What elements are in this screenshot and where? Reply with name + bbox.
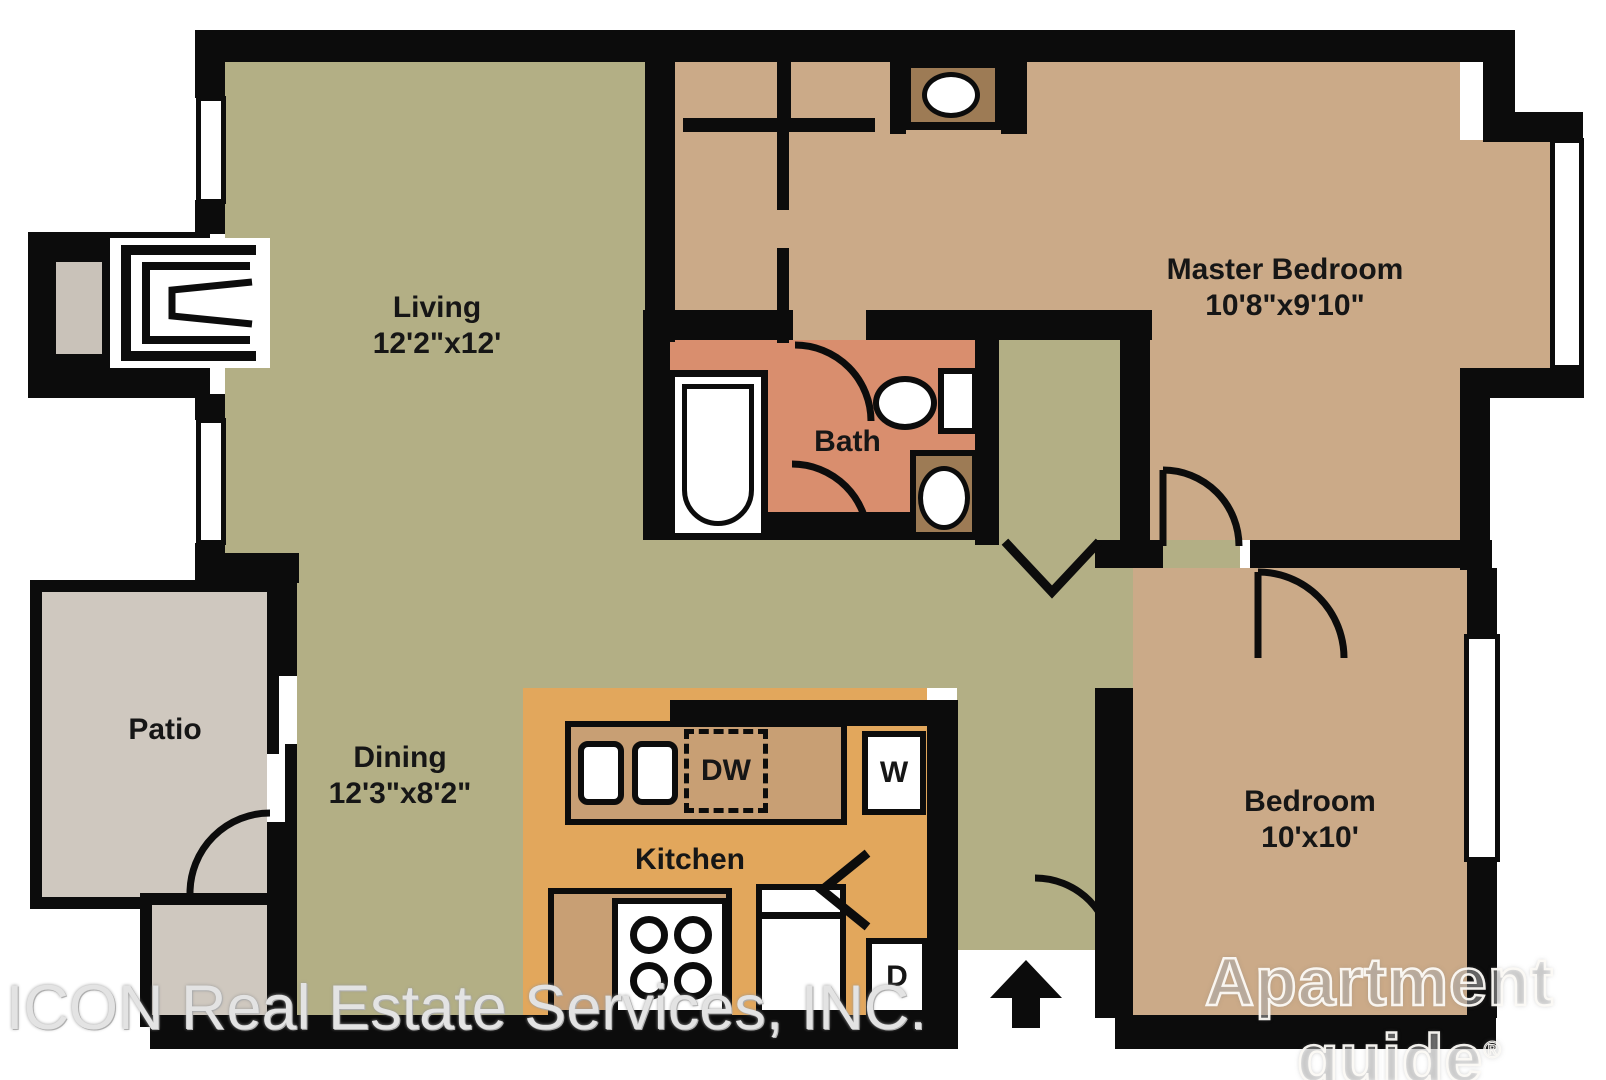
wall-living-foyer [645, 62, 675, 342]
apartment-guide-watermark: Apartment guide® [1205, 950, 1554, 1080]
living-label: Living [297, 290, 577, 326]
dining-label: Dining [260, 740, 540, 776]
wall-left-top [195, 30, 225, 98]
wall-bath-top-right [866, 310, 1152, 340]
patio-name: Patio [128, 713, 201, 746]
master-dims-text: 10'8"x9'10" [1205, 289, 1365, 322]
window-master-bay [1550, 138, 1584, 370]
kitchen-sink-left-icon [578, 741, 624, 805]
wall-bath-top-left [643, 310, 793, 340]
master-bay-floor [1460, 140, 1552, 370]
wall-wc-stub-right [1001, 62, 1027, 134]
patio-label: Patio [85, 712, 245, 748]
washer-box: W [862, 731, 926, 815]
kitchen-label: Kitchen [590, 842, 790, 878]
wall-closet-left [975, 340, 999, 545]
wall-closet-right [1120, 340, 1150, 545]
stove-burner-2 [674, 916, 712, 954]
wall-bay-bottom [1490, 368, 1584, 398]
brand-line1: Apartment [1205, 944, 1554, 1020]
dining-name: Dining [353, 741, 446, 774]
wall-master-bed-divider-right [1250, 540, 1492, 568]
dining-dims-text: 12'3"x8'2" [329, 777, 472, 810]
wall-right-bedroom-upper [1467, 568, 1497, 638]
bathtub-basin [682, 384, 754, 526]
bath-sink-icon [873, 376, 937, 430]
wall-foyer-thin-v3 [777, 248, 789, 343]
wall-corridor-right [1095, 688, 1133, 1018]
wall-bath-left [643, 340, 670, 540]
bath-counter [938, 368, 978, 434]
wall-top [195, 30, 1515, 62]
bath-name: Bath [814, 425, 881, 458]
bath-toilet-icon [918, 466, 970, 530]
bath-label: Bath [780, 424, 915, 460]
kitchen-sink-right-icon [632, 741, 678, 805]
entry-box [958, 950, 1095, 1080]
stove-burner-1 [630, 916, 668, 954]
living-dims: 12'2"x12' [297, 326, 577, 362]
bedroom-dims: 10'x10' [1150, 820, 1470, 856]
wall-foyer-thin-h [683, 118, 875, 132]
dining-dims: 12'3"x8'2" [260, 776, 540, 812]
wall-left-mid1 [195, 200, 225, 234]
fireplace-hearth [56, 262, 102, 354]
wall-foyer-thin-v2 [777, 132, 789, 210]
washer-label: W [880, 756, 908, 790]
master-name: Master Bedroom [1167, 253, 1404, 286]
window-living-upper [196, 96, 226, 204]
window-living-lower [196, 418, 226, 545]
registered-mark: ® [1483, 1037, 1502, 1064]
fridge-handle [762, 912, 840, 919]
bedroom-dims-text: 10'x10' [1261, 821, 1359, 854]
master-bedroom-dims: 10'8"x9'10" [1120, 288, 1450, 324]
bedroom-label: Bedroom [1150, 784, 1470, 820]
closet-floor [999, 340, 1120, 545]
bedroom-name: Bedroom [1244, 785, 1376, 818]
living-name: Living [393, 291, 481, 324]
wc-toilet-icon [922, 72, 980, 118]
floor-plan: DW W D [0, 0, 1606, 1080]
living-dims-text: 12'2"x12' [373, 327, 502, 360]
realtor-watermark: ICON Real Estate Services, INC. [6, 972, 927, 1044]
dishwasher-label: DW [701, 754, 751, 788]
wall-kitchen-right [927, 700, 958, 1015]
kitchen-name: Kitchen [635, 843, 745, 876]
wall-foyer-thin-v1 [777, 62, 791, 118]
brand-line2: guide® [1297, 1019, 1554, 1080]
master-bedroom-label: Master Bedroom [1120, 252, 1450, 288]
dishwasher-box: DW [684, 729, 768, 813]
fireplace-box [110, 238, 270, 368]
